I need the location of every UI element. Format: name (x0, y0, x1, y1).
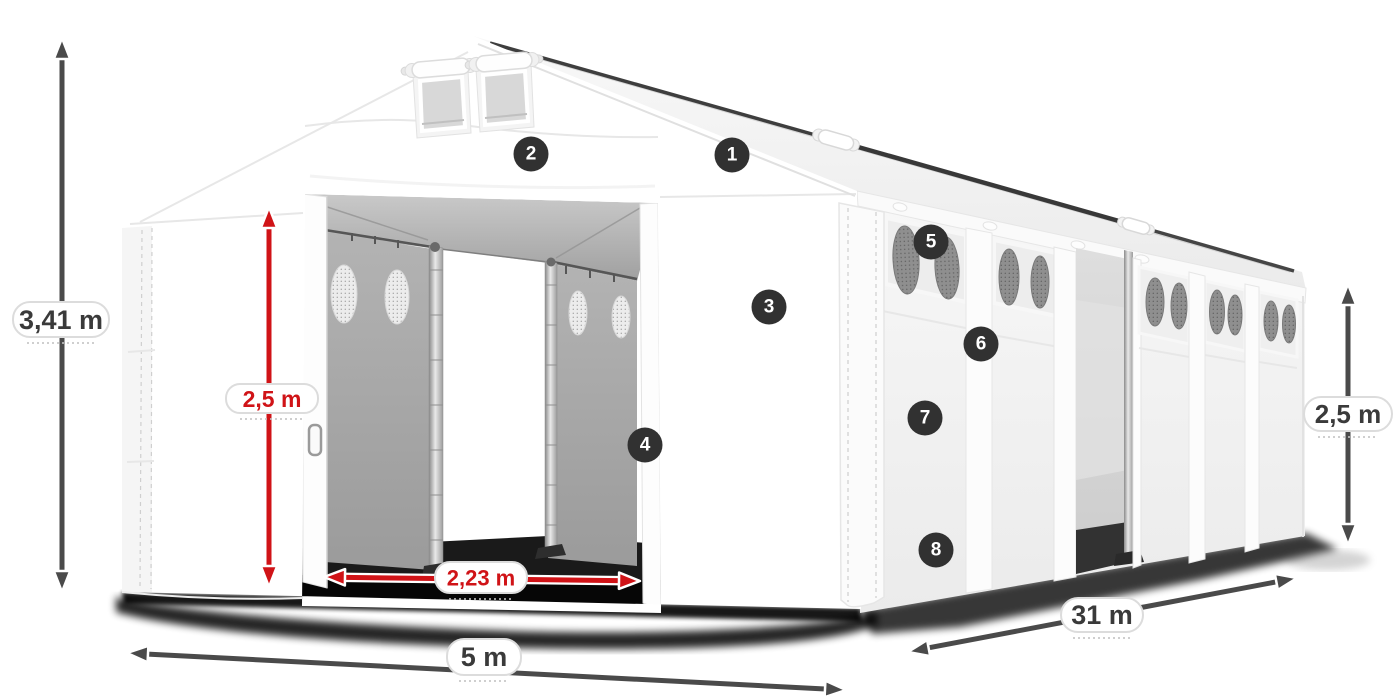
door-handle (309, 425, 321, 455)
hotspot-badge-4[interactable]: 4 (628, 428, 663, 463)
arrow-left-icon (906, 640, 930, 660)
dimension-label: 31 m (1071, 600, 1133, 630)
partition-window-oval (331, 265, 357, 323)
hotspot-number: 5 (926, 232, 937, 253)
arrow-up-icon (1340, 284, 1356, 305)
tent-dimensions-illustration: 1 2 3 4 5 6 7 8 3,41 m (0, 0, 1400, 700)
side-window-oval (1146, 278, 1164, 326)
side-opening-pole (1124, 250, 1133, 558)
hotspot-badge-8[interactable]: 8 (919, 533, 954, 568)
arrow-left-icon (127, 645, 149, 662)
hotspot-number: 2 (526, 144, 537, 165)
side-window-oval (1210, 290, 1225, 334)
tent-interior (302, 194, 661, 613)
hotspot-number: 7 (920, 408, 931, 429)
hotspot-number: 8 (931, 540, 942, 561)
arrow-up-icon (54, 38, 70, 59)
hotspot-number: 1 (727, 145, 738, 166)
dimension-side-height: 2,5 m (1304, 284, 1392, 545)
hotspot-number: 6 (976, 334, 987, 355)
hotspot-badge-7[interactable]: 7 (908, 401, 943, 436)
arrow-right-icon (1275, 570, 1299, 590)
dimension-label: 2,5 m (243, 386, 302, 412)
hotspot-badge-3[interactable]: 3 (752, 290, 787, 325)
dimension-label: 2,5 m (1315, 399, 1382, 429)
dimension-total-height: 3,41 m (13, 38, 109, 592)
inner-partition-left (325, 230, 432, 570)
hotspot-badge-5[interactable]: 5 (914, 225, 949, 260)
dimension-front-width: 5 m (127, 639, 847, 698)
side-window-oval (1283, 305, 1296, 343)
corner-strap (839, 203, 884, 607)
partition-window-oval (569, 291, 587, 335)
front-door-edge-right (640, 203, 661, 610)
side-window-oval (999, 249, 1019, 305)
side-window-oval (1264, 301, 1278, 341)
inner-partition-right (548, 261, 637, 566)
hotspot-number: 4 (640, 435, 651, 456)
arrow-right-icon (825, 681, 847, 698)
arrow-down-icon (1340, 524, 1356, 545)
side-window-oval (1171, 283, 1187, 329)
side-window-oval (1031, 256, 1049, 308)
dimension-label: 2,23 m (447, 566, 516, 591)
partition-window-oval (385, 270, 409, 324)
dimension-label: 3,41 m (19, 305, 103, 335)
arrow-down-icon (54, 571, 70, 592)
side-window-oval (1228, 295, 1242, 335)
hotspot-badge-6[interactable]: 6 (964, 327, 999, 362)
hotspot-badge-1[interactable]: 1 (715, 138, 750, 173)
dimension-label: 5 m (461, 642, 508, 672)
hotspot-number: 3 (764, 297, 775, 318)
partition-window-oval (612, 296, 630, 338)
side-opening (1054, 247, 1144, 581)
hotspot-badge-2[interactable]: 2 (514, 137, 549, 172)
